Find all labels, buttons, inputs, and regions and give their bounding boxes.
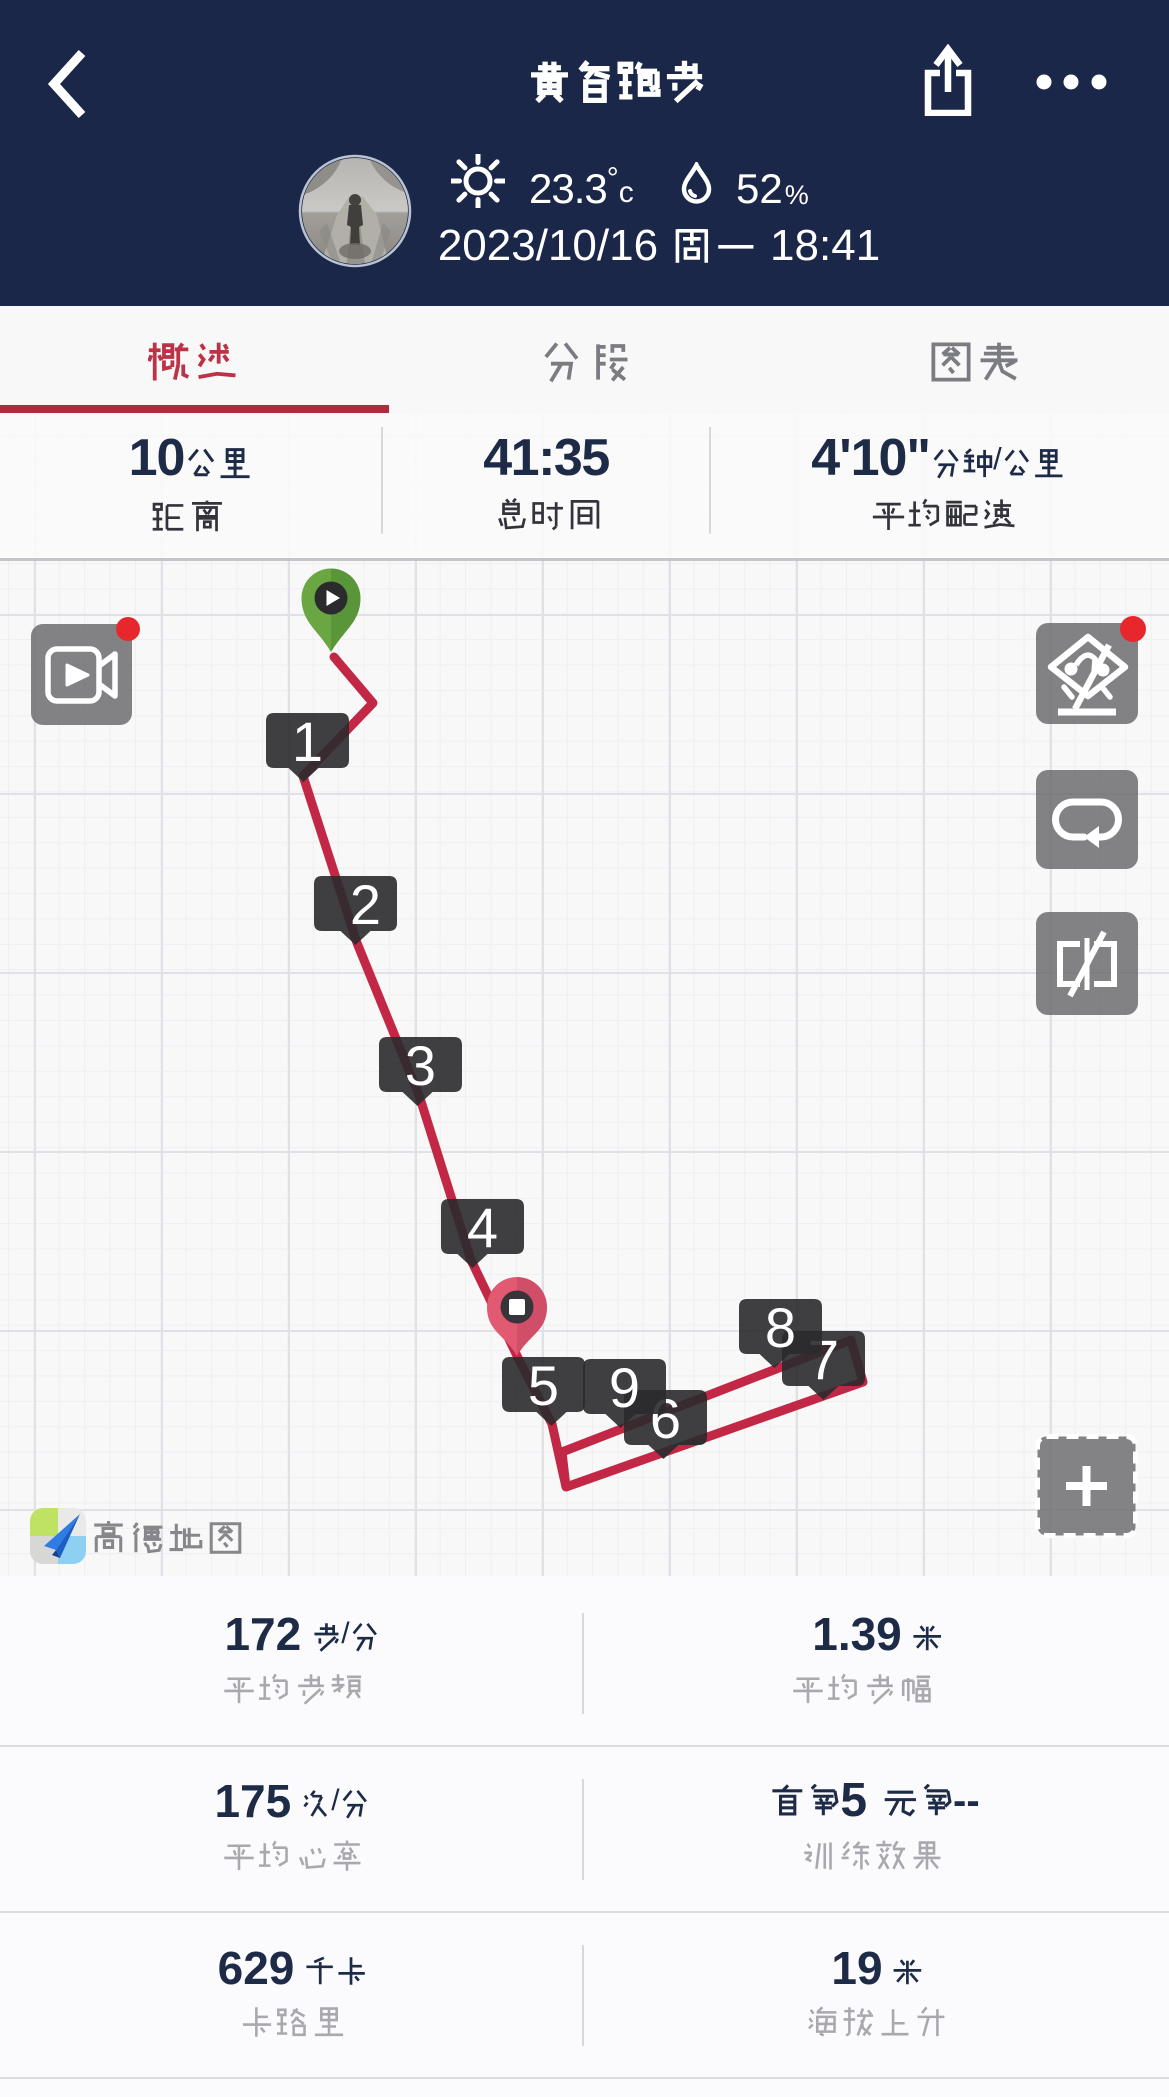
svg-text:9: 9 <box>609 1356 640 1419</box>
svg-text:5: 5 <box>528 1354 559 1417</box>
svg-text:3: 3 <box>405 1034 436 1097</box>
svg-text:4: 4 <box>467 1196 498 1259</box>
svg-text:1: 1 <box>292 710 323 773</box>
svg-text:2: 2 <box>350 873 381 936</box>
svg-text:8: 8 <box>765 1296 796 1359</box>
